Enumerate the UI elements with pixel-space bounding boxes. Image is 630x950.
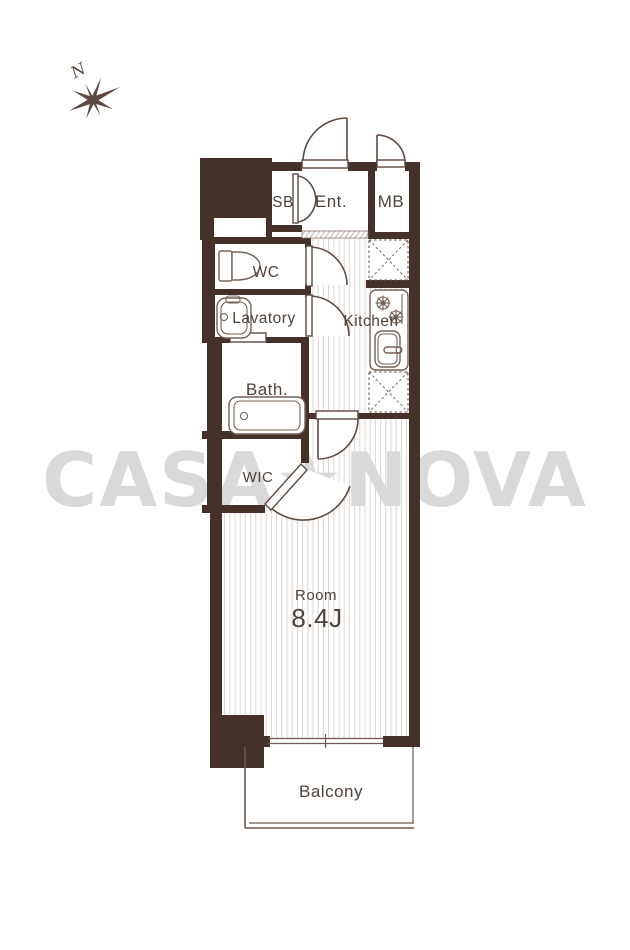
label-kitchen: Kitchen [343,313,398,330]
label-room: Room [295,587,337,604]
floor-plan-svg: CASA★NOVA [0,0,630,950]
label-lavatory: Lavatory [232,310,295,327]
label-mb: MB [378,192,405,211]
floor-plan-page: CASA★NOVA [0,0,630,950]
label-room-size: 8.4J [291,603,342,633]
bathtub-icon [229,397,305,434]
compass-n-label: N [67,58,90,82]
washer-space-box [369,372,408,412]
entrance-door [302,118,348,168]
label-wc: WC [253,264,280,281]
label-sb: SB [272,194,294,211]
fridge-space-box [369,240,408,280]
mb-door [377,135,405,167]
label-wic: WIC [243,469,274,486]
label-balcony: Balcony [299,782,363,801]
label-bath: Bath. [246,380,288,399]
entrance-step [302,231,368,238]
label-entrance: Ent. [315,192,347,211]
kitchen-sink-icon [375,331,402,367]
sb-folding-door [293,174,316,223]
north-compass-icon: N [67,58,120,119]
